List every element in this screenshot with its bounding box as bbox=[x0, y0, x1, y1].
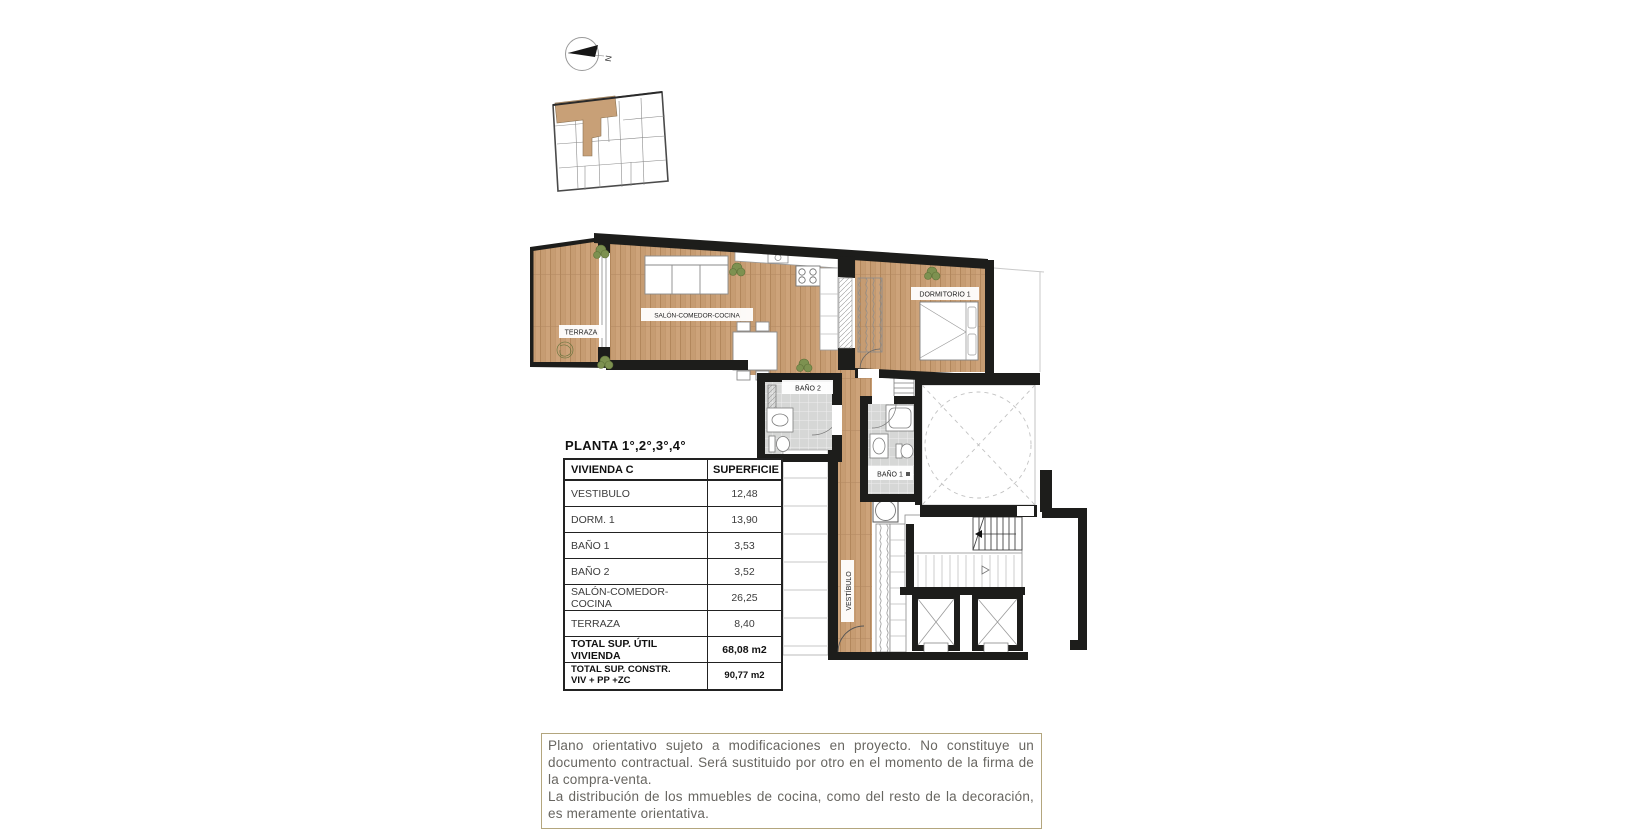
total-label2: VIV + PP +ZC bbox=[571, 675, 631, 686]
dormitorio-door-gap bbox=[858, 369, 879, 378]
bed bbox=[920, 302, 978, 360]
elevator-door bbox=[924, 643, 948, 653]
neighbor-walls bbox=[994, 268, 1044, 372]
elevator-door bbox=[984, 643, 1008, 653]
terraza-floor bbox=[532, 239, 600, 365]
table-row: TERRAZA 8,40 bbox=[564, 611, 782, 637]
row-label: BAÑO 2 bbox=[564, 559, 707, 585]
row-value: 26,25 bbox=[707, 585, 782, 611]
elevators bbox=[912, 593, 1023, 653]
dormitorio-wardrobe bbox=[858, 278, 882, 352]
disclaimer-paragraph-1: Plano orientativo sujeto a modificacione… bbox=[548, 737, 1034, 788]
kitchen-cabinets bbox=[820, 268, 838, 350]
bano2-label: BAÑO 2 bbox=[795, 384, 821, 393]
total-label: TOTAL SUP. ÚTIL VIVIENDA bbox=[564, 637, 707, 663]
plan-sheet: N bbox=[0, 0, 1638, 840]
row-value: 13,90 bbox=[707, 507, 782, 533]
table-row: VESTIBULO 12,48 bbox=[564, 480, 782, 507]
column-circle bbox=[873, 499, 898, 522]
row-value: 3,53 bbox=[707, 533, 782, 559]
row-label: VESTIBULO bbox=[564, 480, 707, 507]
bano2-door-gap bbox=[832, 405, 842, 435]
stove bbox=[796, 266, 820, 286]
key-plan bbox=[545, 86, 673, 196]
row-label: BAÑO 1 bbox=[564, 533, 707, 559]
dormitorio-label: DORMITORIO 1 bbox=[919, 292, 970, 299]
plan-floor-title: PLANTA 1°,2°,3°,4° bbox=[565, 438, 686, 453]
sofa bbox=[645, 256, 728, 294]
table-row: SALÓN-COMEDOR-COCINA 26,25 bbox=[564, 585, 782, 611]
table-row: DORM. 1 13,90 bbox=[564, 507, 782, 533]
table-total-constr-row: TOTAL SUP. CONSTR. VIV + PP +ZC 90,77 m2 bbox=[564, 663, 782, 691]
compass-north-label: N bbox=[603, 55, 614, 63]
stairs bbox=[905, 515, 1022, 589]
vestibulo-label: VESTÍBULO bbox=[844, 571, 853, 611]
total-value: 68,08 m2 bbox=[707, 637, 782, 663]
row-label: TERRAZA bbox=[564, 611, 707, 637]
table-total-util-row: TOTAL SUP. ÚTIL VIVIENDA 68,08 m2 bbox=[564, 637, 782, 663]
disclaimer-box: Plano orientativo sujeto a modificacione… bbox=[541, 733, 1042, 829]
row-label: DORM. 1 bbox=[564, 507, 707, 533]
table-row: BAÑO 1 3,53 bbox=[564, 533, 782, 559]
table-header-row: VIVIENDA C SUPERFICIE bbox=[564, 459, 782, 480]
row-value: 3,52 bbox=[707, 559, 782, 585]
row-value: 12,48 bbox=[707, 480, 782, 507]
sliding-door bbox=[839, 278, 852, 348]
disclaimer-paragraph-2: La distribución de los mmuebles de cocin… bbox=[548, 788, 1034, 822]
adjacent-area bbox=[783, 450, 828, 655]
total-value: 90,77 m2 bbox=[707, 663, 782, 691]
table-row: BAÑO 2 3,52 bbox=[564, 559, 782, 585]
row-value: 8,40 bbox=[707, 611, 782, 637]
terraza-label: TERRAZA bbox=[565, 330, 598, 337]
row-label: SALÓN-COMEDOR-COCINA bbox=[564, 585, 707, 611]
surface-table: VIVIENDA C SUPERFICIE VESTIBULO 12,48 DO… bbox=[563, 458, 783, 691]
table-header-surface: SUPERFICIE bbox=[707, 459, 782, 480]
salon-label: SALÓN-COMEDOR-COCINA bbox=[654, 311, 740, 320]
north-compass-icon: N bbox=[540, 25, 620, 83]
bano1-label: BAÑO 1 bbox=[877, 470, 903, 479]
table-header-dwelling: VIVIENDA C bbox=[564, 459, 707, 480]
total-label: TOTAL SUP. CONSTR. bbox=[571, 664, 671, 675]
